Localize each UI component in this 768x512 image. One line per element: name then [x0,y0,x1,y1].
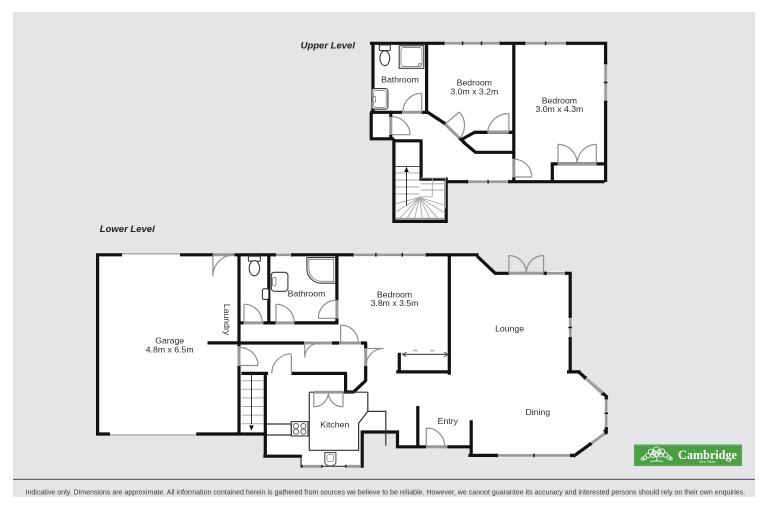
svg-text:Entry: Entry [438,416,459,426]
svg-text:Indicative only. Dimensions ar: Indicative only. Dimensions are approxim… [26,490,746,497]
svg-text:Laundry: Laundry [222,304,232,336]
svg-text:Kitchen: Kitchen [320,419,349,429]
svg-text:Upper Level: Upper Level [301,40,356,51]
svg-text:Real Estate: Real Estate [699,460,716,464]
svg-text:Dining: Dining [525,407,550,417]
svg-text:Bathroom: Bathroom [381,75,419,85]
svg-text:3.0m x 3.2m: 3.0m x 3.2m [450,86,498,96]
svg-text:4.8m x 6.5m: 4.8m x 6.5m [146,345,194,355]
svg-text:3.8m x 3.5m: 3.8m x 3.5m [371,298,419,308]
svg-text:3.0m x 4.3m: 3.0m x 4.3m [535,104,583,114]
svg-text:Lounge: Lounge [495,323,524,333]
svg-text:Lower Level: Lower Level [100,224,155,235]
svg-text:Bathroom: Bathroom [288,289,326,299]
